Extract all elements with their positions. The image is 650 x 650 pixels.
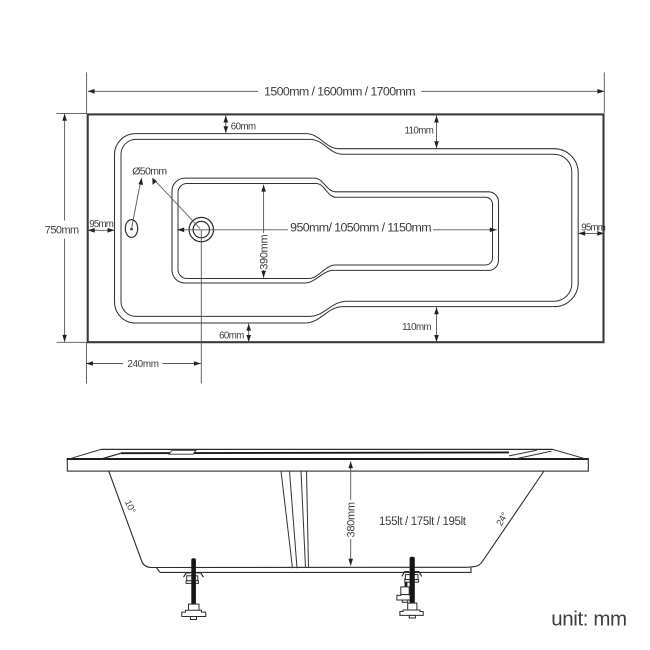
svg-text:95mm: 95mm xyxy=(89,219,113,230)
svg-text:110mm: 110mm xyxy=(402,322,431,333)
svg-text:10°: 10° xyxy=(123,498,139,515)
svg-text:60mm: 60mm xyxy=(219,331,244,342)
svg-text:110mm: 110mm xyxy=(404,125,433,136)
svg-text:750mm: 750mm xyxy=(45,225,79,237)
svg-text:95mm: 95mm xyxy=(581,222,605,233)
svg-text:155lt / 175lt / 195lt: 155lt / 175lt / 195lt xyxy=(379,516,467,528)
svg-text:950mm/ 1050mm / 1150mm: 950mm/ 1050mm / 1150mm xyxy=(290,220,431,234)
svg-text:380mm: 380mm xyxy=(345,502,357,537)
svg-text:1500mm / 1600mm / 1700mm: 1500mm / 1600mm / 1700mm xyxy=(264,85,415,99)
svg-text:240mm: 240mm xyxy=(127,359,158,370)
svg-text:Ø50mm: Ø50mm xyxy=(132,166,167,178)
svg-text:unit: mm: unit: mm xyxy=(551,607,626,630)
svg-text:60mm: 60mm xyxy=(231,122,256,133)
svg-text:390mm: 390mm xyxy=(258,234,270,269)
